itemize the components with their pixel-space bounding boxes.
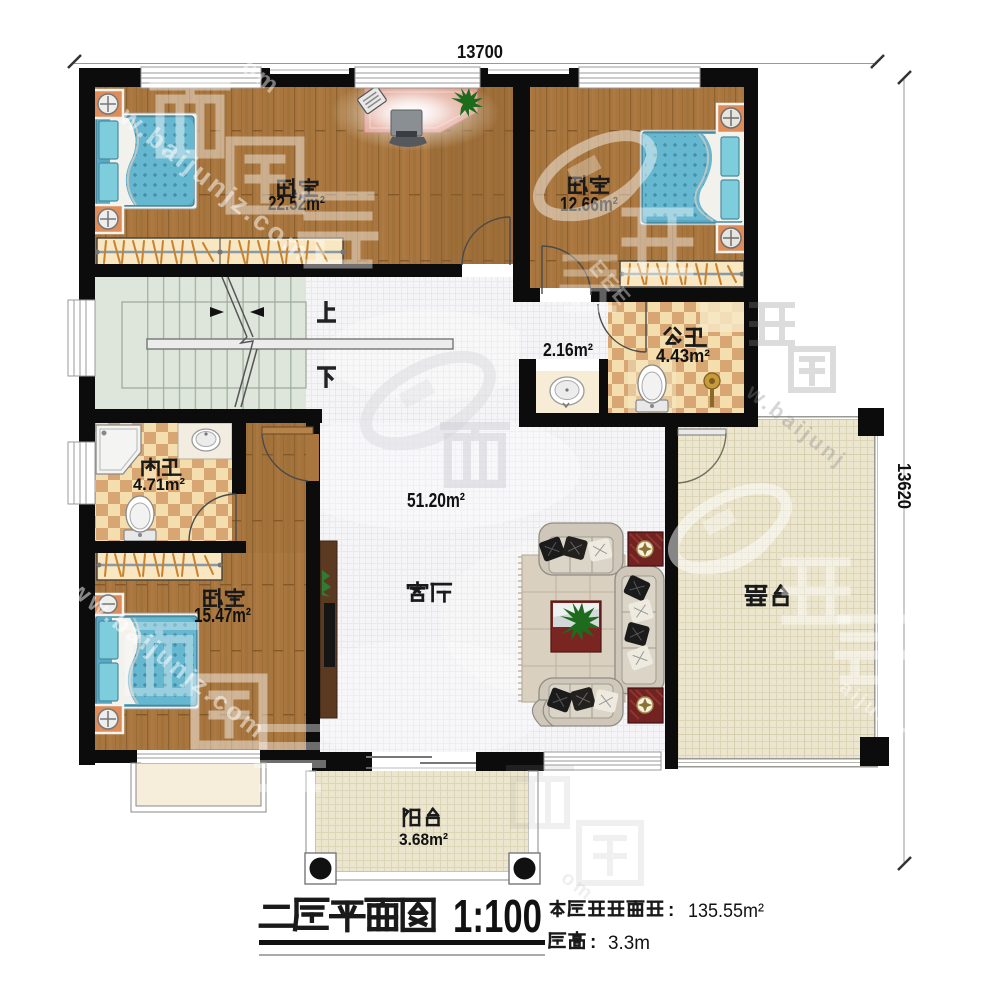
svg-text:4.43m²: 4.43m² bbox=[656, 346, 710, 366]
svg-text:15.47m²: 15.47m² bbox=[194, 605, 251, 627]
svg-text:13700: 13700 bbox=[457, 42, 503, 62]
svg-text:1:100: 1:100 bbox=[453, 890, 542, 942]
svg-text:135.55m²: 135.55m² bbox=[688, 901, 764, 922]
svg-text:2.16m²: 2.16m² bbox=[543, 340, 593, 360]
svg-text:3.3m: 3.3m bbox=[608, 933, 650, 954]
svg-text:4.71m²: 4.71m² bbox=[133, 475, 185, 494]
svg-text:51.20m²: 51.20m² bbox=[407, 490, 465, 512]
svg-text:13620: 13620 bbox=[894, 463, 914, 509]
svg-text:3.68m²: 3.68m² bbox=[399, 830, 448, 849]
svg-text::: : bbox=[590, 932, 596, 953]
svg-text::: : bbox=[668, 900, 674, 921]
